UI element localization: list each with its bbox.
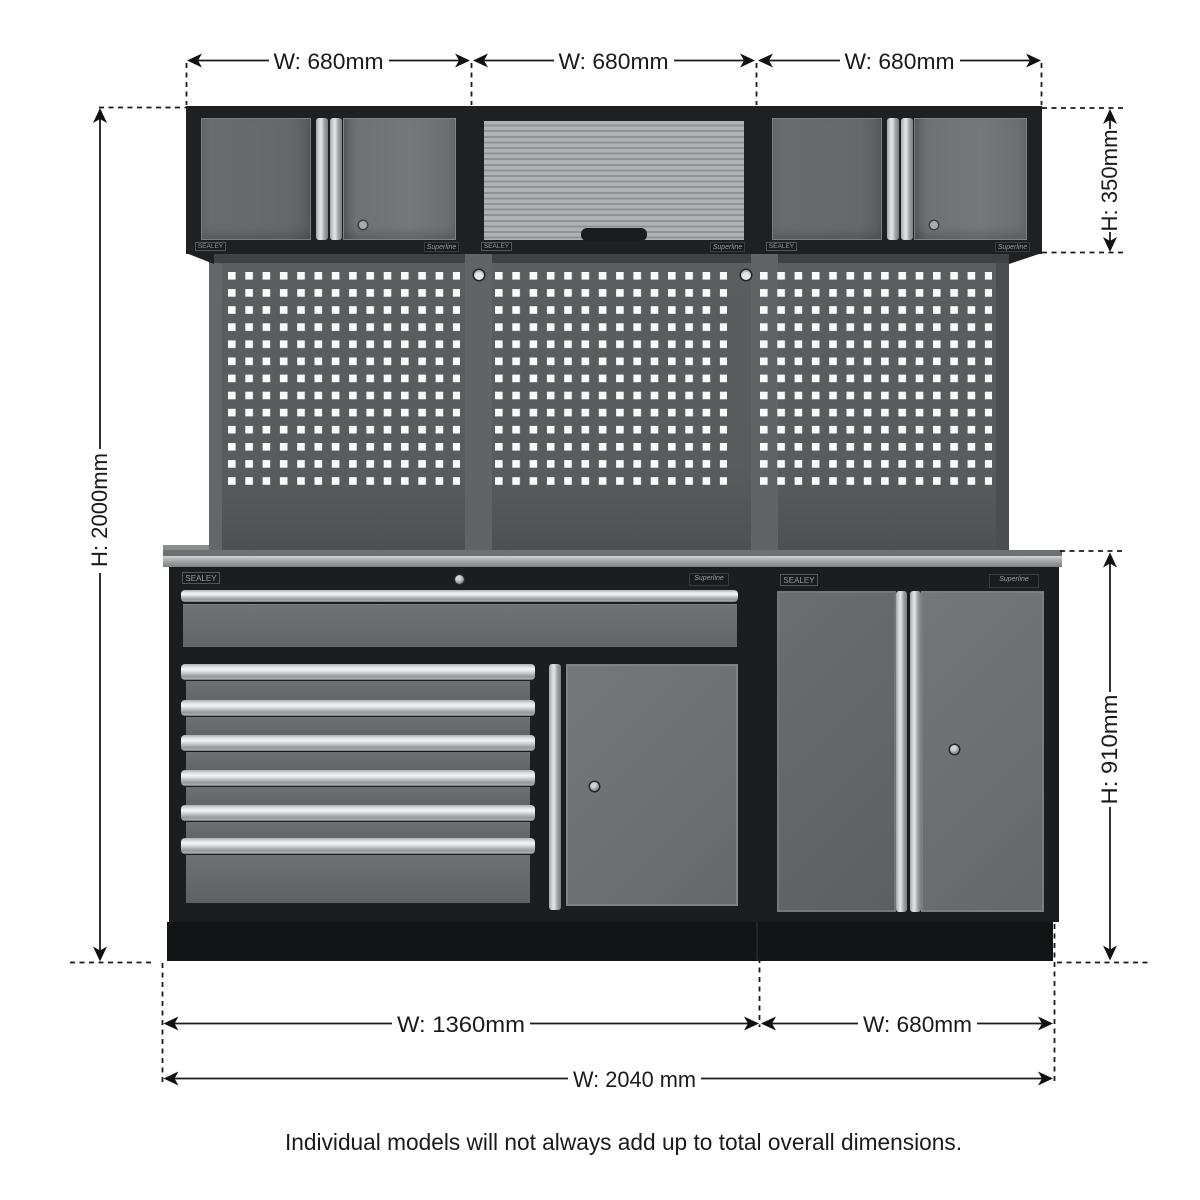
svg-text:W: 680mm: W: 680mm xyxy=(559,49,669,74)
svg-text:H: 910mm: H: 910mm xyxy=(1097,695,1122,805)
svg-text:H: 350mm: H: 350mm xyxy=(1097,130,1122,232)
svg-text:W: 2040 mm: W: 2040 mm xyxy=(573,1067,696,1092)
svg-text:H: 2000mm: H: 2000mm xyxy=(87,453,112,567)
svg-text:W: 680mm: W: 680mm xyxy=(863,1012,972,1037)
svg-text:W: 680mm: W: 680mm xyxy=(274,49,384,74)
svg-text:W: 680mm: W: 680mm xyxy=(845,49,955,74)
svg-text:Individual models will not alw: Individual models will not always add up… xyxy=(285,1129,962,1155)
svg-text:W: 1360mm: W: 1360mm xyxy=(397,1012,525,1037)
